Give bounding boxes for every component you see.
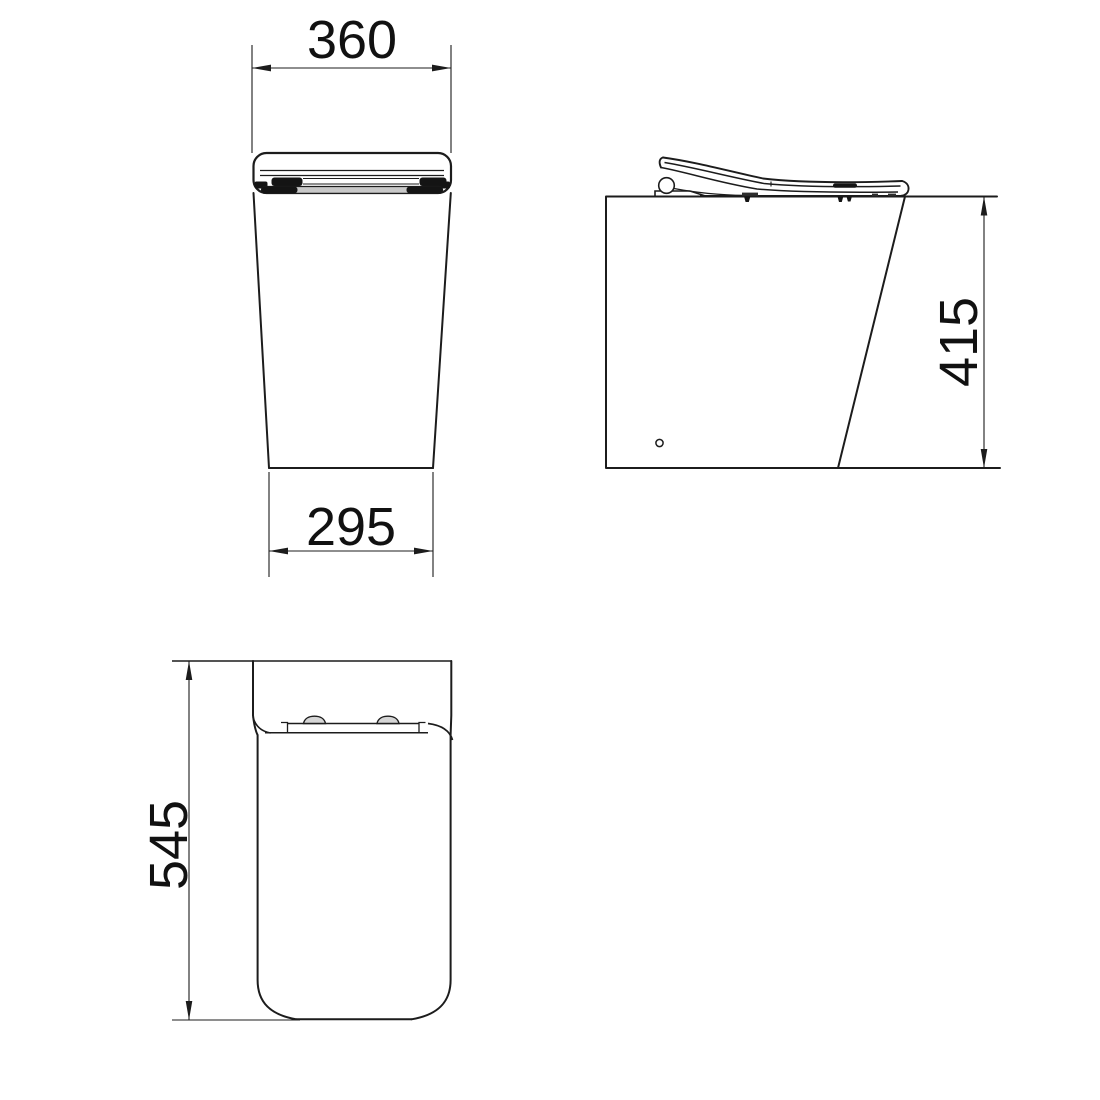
side-dimension-height: 415 — [929, 197, 989, 469]
hinge-cap-right — [377, 716, 399, 723]
seat-front-cap — [901, 181, 909, 196]
arrowhead-left — [269, 548, 288, 555]
seat-band-cap-right — [407, 187, 443, 194]
lid-back-tip — [660, 158, 663, 168]
seat-tail-right — [428, 724, 453, 741]
hinge-cap-left — [304, 716, 326, 723]
dimension-label-360: 360 — [307, 10, 397, 70]
rear-view: 545 — [139, 661, 453, 1020]
technical-drawing-page: 360 295 — [0, 0, 1100, 1100]
dimension-label-545: 545 — [139, 800, 199, 890]
hinge-left — [272, 178, 303, 187]
hinge-knob — [659, 178, 675, 194]
front-view: 360 295 — [252, 10, 451, 577]
front-dimension-bottom-width: 295 — [269, 472, 433, 577]
arrowhead-top — [186, 661, 193, 680]
seat-band-bracket-right — [419, 723, 426, 734]
arrowhead-bottom — [186, 1001, 193, 1020]
toilet-dimension-diagram: 360 295 — [0, 0, 1100, 1100]
seat-under-curve — [674, 189, 745, 196]
rear-dimension-height: 545 — [139, 661, 199, 1020]
arrowhead-right — [432, 65, 451, 72]
seat-band-bracket-left — [281, 723, 288, 734]
body-sides-front — [254, 193, 451, 468]
arrowhead-right — [414, 548, 433, 555]
rear-toilet-outline — [172, 661, 453, 1020]
body-right-edge — [412, 661, 452, 1019]
fixing-hole — [656, 439, 663, 446]
seat-dot-mark-2 — [888, 194, 896, 197]
front-dimension-top-width: 360 — [252, 10, 451, 153]
arrowhead-left — [252, 65, 271, 72]
lid-latch-mark — [833, 183, 857, 188]
lid-edge-lines — [260, 171, 444, 176]
dimension-label-295: 295 — [306, 497, 396, 557]
lid-mid-curve — [665, 163, 901, 187]
side-view: 415 — [606, 158, 1000, 469]
seat-band-cap-left — [262, 187, 298, 194]
front-toilet-outline — [254, 153, 452, 468]
arrowhead-top — [981, 197, 988, 216]
seat-bumper-mark — [742, 193, 758, 196]
dimension-label-415: 415 — [929, 297, 989, 387]
seat-dot-mark-1 — [872, 194, 878, 197]
arrowhead-bottom — [981, 449, 988, 468]
seat-edge-lines — [303, 179, 419, 185]
body-left-edge — [253, 661, 297, 1019]
